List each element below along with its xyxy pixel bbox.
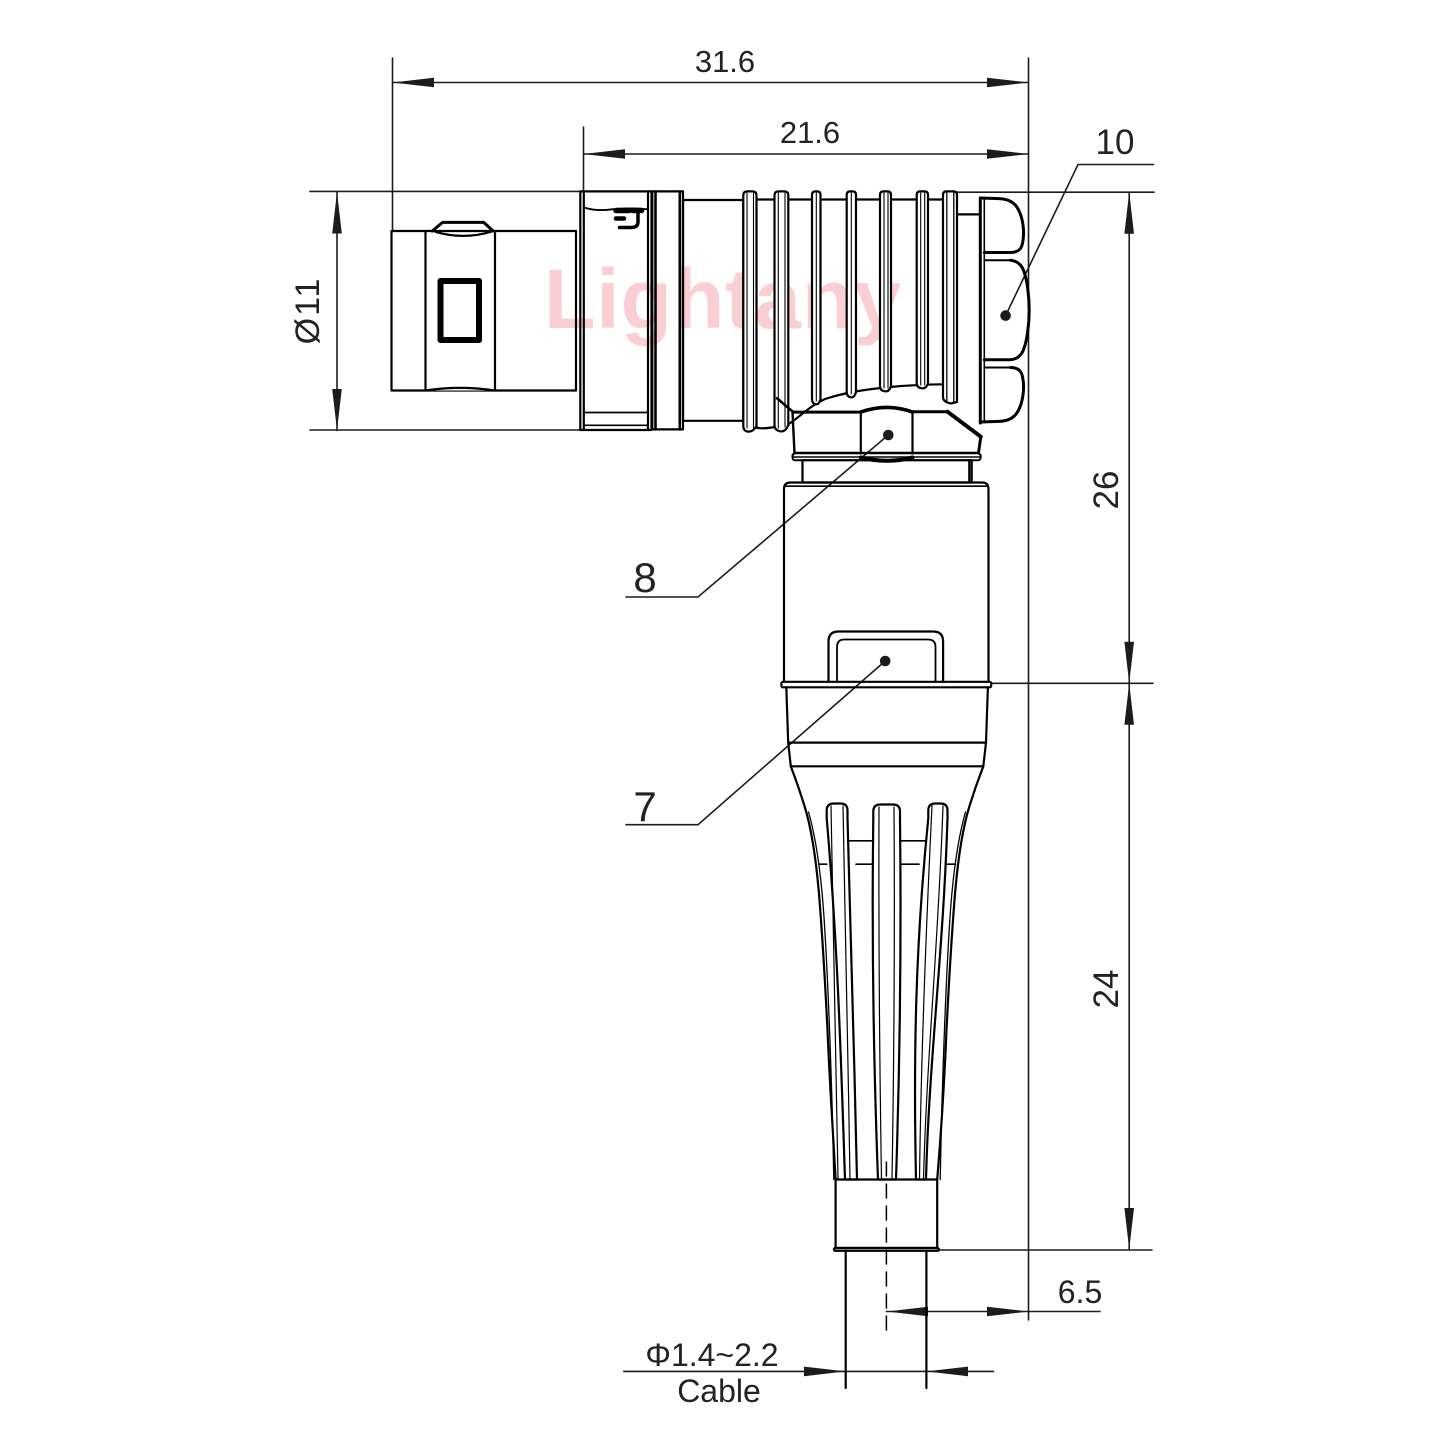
svg-text:21.6: 21.6	[780, 115, 840, 150]
svg-text:7: 7	[633, 783, 656, 830]
svg-text:31.6: 31.6	[695, 44, 755, 79]
svg-text:8: 8	[633, 554, 656, 601]
svg-text:26: 26	[1087, 471, 1126, 510]
svg-text:Φ1.4~2.2: Φ1.4~2.2	[645, 1337, 778, 1373]
svg-text:Cable: Cable	[677, 1373, 761, 1409]
svg-text:6.5: 6.5	[1058, 1274, 1102, 1310]
svg-text:24: 24	[1087, 970, 1126, 1009]
svg-text:10: 10	[1096, 123, 1135, 162]
svg-text:Ø11: Ø11	[289, 277, 327, 345]
